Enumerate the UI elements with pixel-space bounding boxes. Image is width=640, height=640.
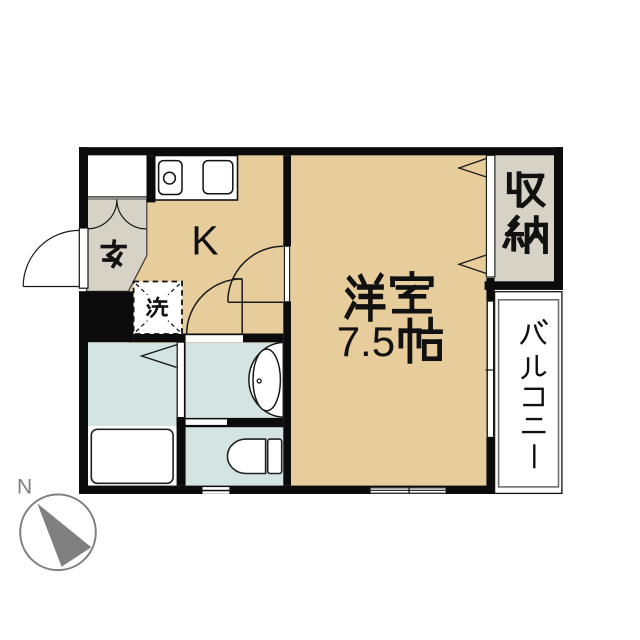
svg-text:N: N <box>17 475 32 498</box>
svg-text:7.5: 7.5 <box>337 318 395 365</box>
svg-text:K: K <box>191 218 218 264</box>
